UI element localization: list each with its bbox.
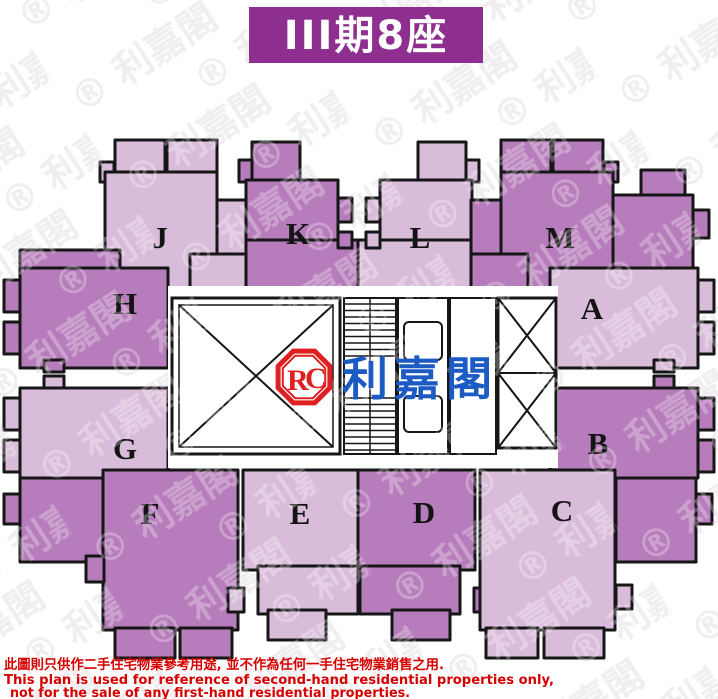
ricacorp-logo: R C 利嘉閣 <box>278 351 498 406</box>
disclaimer-zh: 此圖則只供作二手住宅物業參考用途, 並不作為任何一手住宅物業銷售之用. <box>4 656 444 673</box>
title-banner: III期8座 <box>249 7 483 63</box>
floor-plan-canvas: ® 利嘉閣 ® 利嘉閣 ® 利嘉閣 ® 利嘉閣 J K <box>0 0 718 699</box>
disclaimer-en-line2: not for the sale of any first-hand resid… <box>10 685 410 699</box>
logo-monogram-c: C <box>305 362 327 395</box>
page-title: III期8座 <box>284 13 448 59</box>
watermark-overlay <box>0 0 718 699</box>
logo-brand-name: 利嘉閣 <box>342 352 498 406</box>
floor-plan-page: ® 利嘉閣 ® 利嘉閣 ® 利嘉閣 ® 利嘉閣 J K <box>0 0 718 699</box>
